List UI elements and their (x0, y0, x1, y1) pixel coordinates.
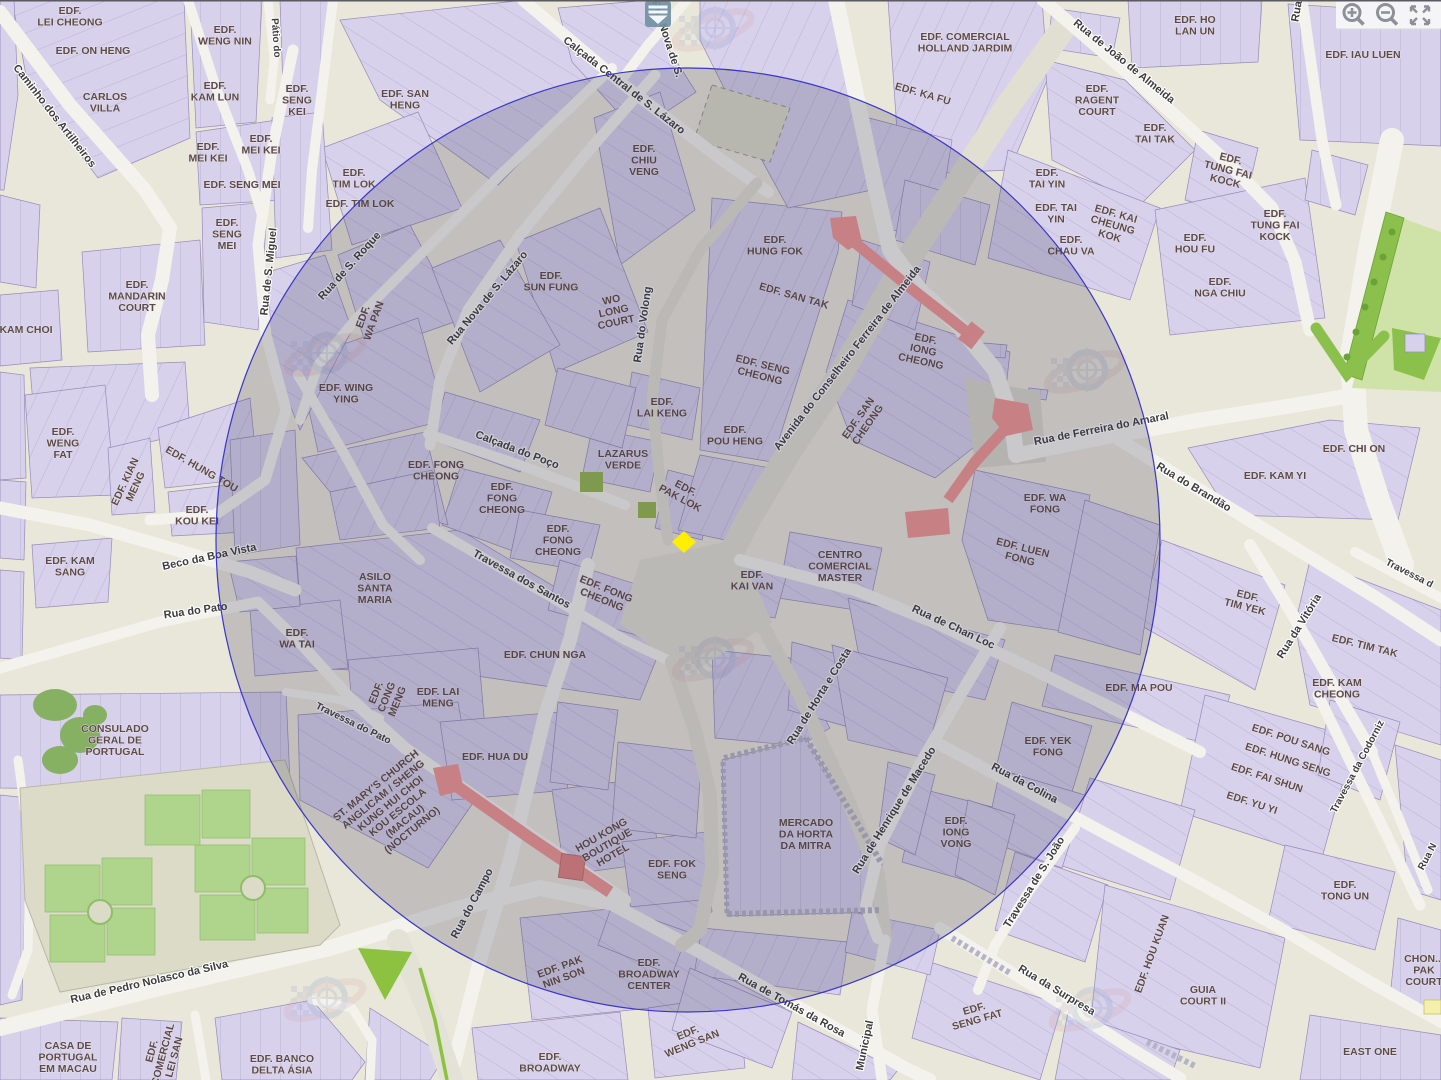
svg-text:EDF. HOLAN UN: EDF. HOLAN UN (1174, 14, 1215, 38)
svg-text:EDF. SENG MEI: EDF. SENG MEI (203, 179, 280, 191)
svg-text:EDF. KAM YI: EDF. KAM YI (1244, 470, 1306, 482)
svg-text:EDF. CHI ON: EDF. CHI ON (1323, 443, 1385, 455)
svg-text:EAST ONE: EAST ONE (1343, 1046, 1397, 1058)
svg-text:EDF. BANCODELTA ÁSIA: EDF. BANCODELTA ÁSIA (250, 1053, 314, 1077)
svg-text:EDF. ON HENG: EDF. ON HENG (56, 45, 131, 57)
svg-text:CASA DEPORTUGALEM MACAU: CASA DEPORTUGALEM MACAU (39, 1040, 99, 1075)
svg-text:EDF. COMERCIALHOLLAND JARDIM: EDF. COMERCIALHOLLAND JARDIM (918, 31, 1013, 55)
svg-text:CONSULADOGERAL DEPORTUGAL: CONSULADOGERAL DEPORTUGAL (81, 723, 149, 758)
svg-text:EDF. IAU LUEN: EDF. IAU LUEN (1325, 49, 1400, 61)
svg-text:EDF. KAMCHEONG: EDF. KAMCHEONG (1312, 677, 1362, 701)
svg-text:KAM CHOI: KAM CHOI (0, 324, 53, 336)
